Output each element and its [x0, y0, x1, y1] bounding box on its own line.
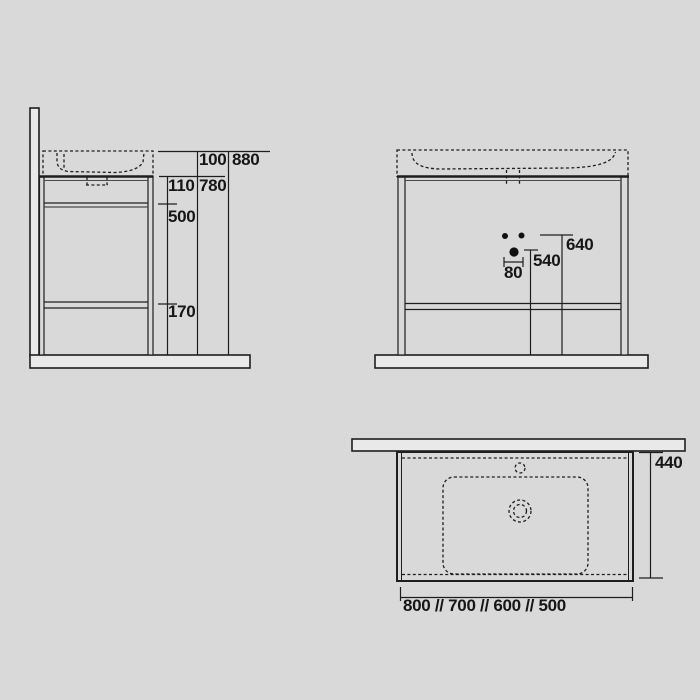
dim-label-basin-height: 100	[199, 151, 226, 168]
dim-label-mid-section: 500	[168, 208, 195, 225]
side-elevation-view	[30, 108, 270, 368]
dim-label-top-section: 110	[168, 177, 195, 194]
front-basin-dashed-outline	[397, 150, 628, 184]
front-elevation-view	[375, 150, 648, 368]
side-frame-leg-left	[40, 177, 45, 355]
plan-wall	[352, 439, 685, 451]
dim-label-upper-holes-height: 640	[566, 236, 593, 253]
side-lower-shelf	[44, 302, 148, 308]
drawing-linework	[0, 0, 700, 700]
dim-label-center-hole-height: 540	[533, 252, 560, 269]
dim-label-available-widths: 800 // 700 // 600 // 500	[403, 597, 566, 614]
plan-view	[352, 439, 685, 601]
front-basin-bowl-profile	[412, 152, 616, 169]
front-frame-leg-left	[398, 177, 405, 355]
front-hole-upper-left	[502, 233, 508, 239]
plan-console-outline	[397, 452, 633, 581]
washbasin-technical-drawing: 100 880 110 780 500 170 640 540 80 440 8…	[0, 0, 700, 700]
dim-label-bottom-section: 170	[168, 303, 195, 320]
front-lower-shelf	[405, 304, 621, 310]
front-frame-leg-right	[621, 177, 628, 355]
front-mounting-holes	[502, 233, 525, 257]
front-floor-plate	[375, 355, 648, 368]
side-floor-plate	[30, 355, 250, 368]
side-upper-shelf	[44, 203, 148, 207]
front-hole-center	[509, 247, 518, 256]
dim-label-total-height: 880	[232, 151, 259, 168]
side-wall	[30, 108, 39, 356]
side-frame-leg-right	[148, 177, 153, 355]
dim-label-depth: 440	[655, 454, 682, 471]
dim-label-frame-height: 780	[199, 177, 226, 194]
side-basin-dashed-outline	[43, 151, 153, 185]
front-hole-upper-right	[519, 233, 525, 239]
side-basin-bowl-profile	[57, 153, 144, 173]
dim-label-hole-spacing: 80	[504, 264, 522, 281]
